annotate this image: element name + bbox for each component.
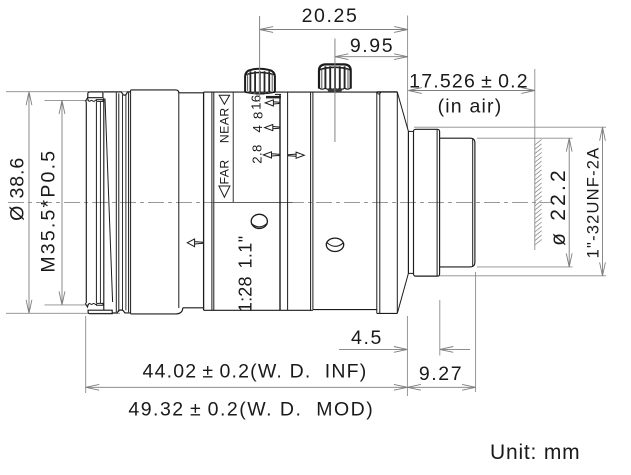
- svg-text:49.32 ± 0.2(W. D. MOD): 49.32 ± 0.2(W. D. MOD): [128, 398, 374, 420]
- svg-text:4.5: 4.5: [351, 327, 383, 349]
- svg-text:1"-32UNF-2A: 1"-32UNF-2A: [584, 147, 602, 259]
- svg-text:17.526 ± 0.2: 17.526 ± 0.2: [409, 71, 529, 93]
- svg-text:1:28: 1:28: [235, 276, 255, 312]
- svg-text:(in air): (in air): [438, 96, 503, 118]
- svg-text:NEAR: NEAR: [217, 107, 231, 143]
- svg-text:1.1": 1.1": [235, 235, 255, 268]
- svg-text:4: 4: [250, 125, 265, 133]
- svg-text:16: 16: [249, 94, 264, 109]
- svg-text:9.27: 9.27: [419, 363, 463, 385]
- svg-text:9.95: 9.95: [350, 35, 394, 57]
- svg-text:44.02 ± 0.2(W. D. INF): 44.02 ± 0.2(W. D. INF): [143, 361, 368, 383]
- svg-text:Unit: mm: Unit: mm: [490, 441, 580, 464]
- svg-text:M35.5*P0.5: M35.5*P0.5: [38, 149, 60, 273]
- svg-text:Ø 38.6: Ø 38.6: [6, 157, 28, 221]
- svg-text:20.25: 20.25: [302, 5, 359, 27]
- svg-text:ø 22.2: ø 22.2: [547, 167, 570, 246]
- svg-text:8: 8: [250, 111, 265, 119]
- svg-text:2.8: 2.8: [250, 144, 265, 164]
- svg-text:FAR: FAR: [217, 159, 231, 184]
